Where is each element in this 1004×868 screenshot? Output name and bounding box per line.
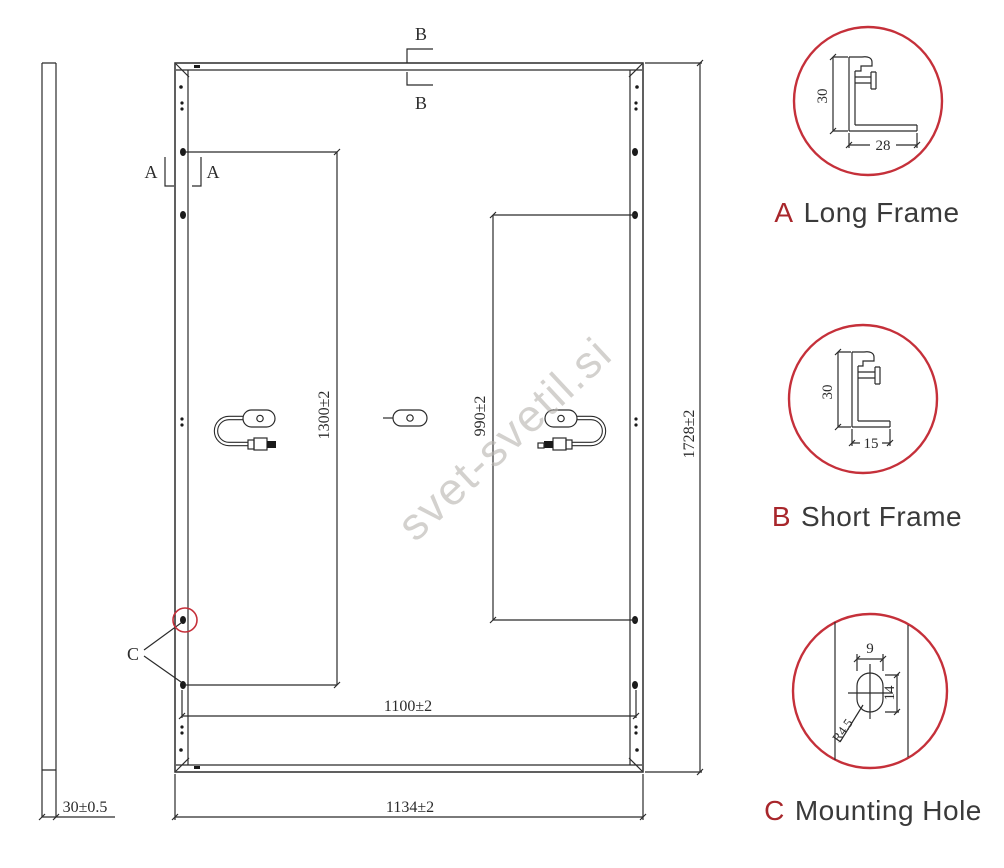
detail-b-dim-15: 15 bbox=[864, 436, 879, 452]
section-markers-a: A A bbox=[145, 157, 220, 186]
detail-b: 30 15 bbox=[789, 325, 937, 473]
dim-label-1100: 1100±2 bbox=[384, 698, 432, 715]
detail-a-dim-30: 30 bbox=[815, 89, 831, 104]
junction-box-left bbox=[216, 410, 276, 450]
detail-c-caption: C Mounting Hole bbox=[762, 795, 984, 827]
short-frame-profile bbox=[852, 352, 890, 427]
connector-left bbox=[248, 438, 276, 450]
dimension-1100: 1100±2 bbox=[179, 690, 639, 719]
detail-b-dim-30: 30 bbox=[820, 385, 836, 400]
section-a-label-left: A bbox=[145, 162, 158, 182]
section-c-label: C bbox=[127, 644, 139, 664]
connector-right bbox=[538, 438, 572, 450]
detail-a-caption: A Long Frame bbox=[756, 197, 978, 229]
detail-b-letter: B bbox=[772, 501, 791, 533]
detail-c: 9 14 R4.5 bbox=[793, 614, 947, 768]
mounting-hole-callout-c: C bbox=[127, 608, 197, 682]
dim-label-thickness: 30±0.5 bbox=[63, 799, 108, 816]
section-a-label-right: A bbox=[207, 162, 220, 182]
drain-holes bbox=[179, 65, 639, 769]
detail-c-dim-9: 9 bbox=[866, 641, 874, 657]
detail-c-dim-r45: R4.5 bbox=[829, 716, 856, 745]
detail-b-caption: B Short Frame bbox=[756, 501, 978, 533]
detail-b-title: Short Frame bbox=[801, 501, 962, 533]
dimension-1728: 1728±2 bbox=[645, 60, 703, 775]
detail-a: 30 28 bbox=[794, 27, 942, 175]
detail-a-title: Long Frame bbox=[804, 197, 960, 229]
mounting-holes bbox=[180, 148, 638, 689]
section-b-label-bottom: B bbox=[415, 93, 427, 113]
detail-a-letter: A bbox=[774, 197, 793, 229]
long-frame-profile bbox=[849, 57, 917, 131]
detail-c-letter: C bbox=[764, 795, 785, 827]
panel-back-view bbox=[175, 63, 643, 772]
section-b-label-top: B bbox=[415, 24, 427, 44]
detail-c-dim-14: 14 bbox=[882, 685, 898, 701]
side-profile-view bbox=[39, 63, 115, 820]
section-markers-b: B B bbox=[407, 24, 433, 113]
dim-label-1134: 1134±2 bbox=[386, 799, 434, 816]
dimension-1300: 1300±2 bbox=[185, 149, 340, 688]
dim-label-1300: 1300±2 bbox=[316, 391, 333, 440]
detail-c-title: Mounting Hole bbox=[795, 795, 982, 827]
dimension-1134: 1134±2 bbox=[172, 774, 646, 820]
detail-a-dim-28: 28 bbox=[876, 138, 891, 154]
connector-center bbox=[383, 410, 427, 426]
drawing-sheet: 30±0.5 bbox=[0, 0, 1004, 868]
dim-label-1728: 1728±2 bbox=[681, 410, 698, 459]
